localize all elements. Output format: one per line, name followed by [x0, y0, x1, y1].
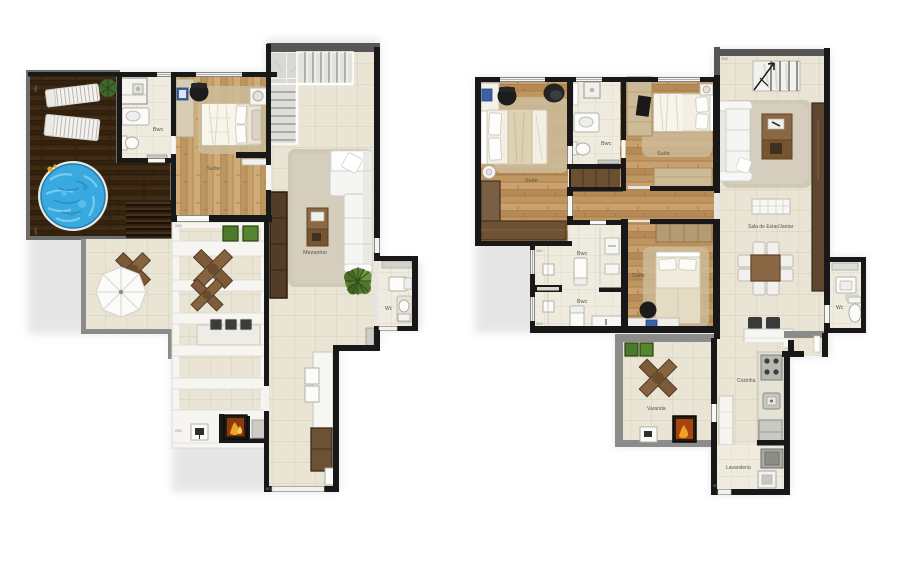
svg-text:Cozinha: Cozinha: [737, 378, 756, 384]
svg-text:Sala de Estar/Jantar: Sala de Estar/Jantar: [748, 224, 794, 230]
svg-text:242: 242: [622, 335, 629, 340]
svg-text:Suíte: Suíte: [207, 166, 220, 172]
svg-text:Bwc: Bwc: [601, 141, 612, 147]
svg-text:Bwc: Bwc: [577, 299, 588, 305]
svg-text:300: 300: [536, 321, 543, 326]
svg-text:290: 290: [33, 85, 38, 92]
svg-text:Suíte: Suíte: [632, 273, 645, 279]
svg-text:280: 280: [536, 248, 543, 253]
svg-text:90: 90: [713, 483, 718, 488]
svg-text:Lavanderia: Lavanderia: [726, 465, 751, 471]
svg-text:Varanda: Varanda: [647, 406, 666, 412]
svg-text:Suíte: Suíte: [657, 151, 670, 157]
svg-text:358: 358: [721, 56, 728, 61]
svg-text:Mezanino: Mezanino: [303, 250, 327, 256]
svg-text:Wc: Wc: [836, 305, 844, 311]
svg-text:Bwc: Bwc: [577, 251, 588, 257]
svg-text:280: 280: [175, 223, 182, 228]
svg-text:250: 250: [175, 428, 182, 433]
svg-text:150: 150: [33, 228, 38, 235]
svg-text:Bwc: Bwc: [153, 127, 164, 133]
svg-text:80: 80: [266, 486, 271, 491]
svg-text:Suíte: Suíte: [525, 178, 538, 184]
svg-text:Wc: Wc: [385, 306, 393, 312]
